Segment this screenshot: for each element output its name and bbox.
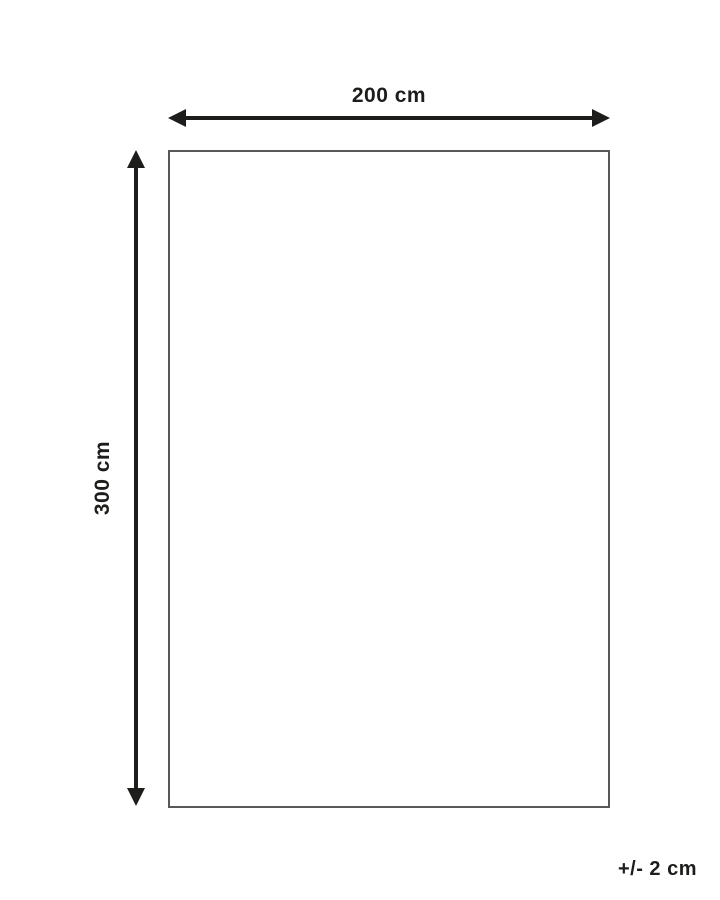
tolerance-label: +/- 2 cm [618, 858, 697, 881]
width-dimension-arrow-icon [168, 106, 610, 130]
height-dimension-arrow-icon [124, 150, 148, 806]
product-outline-rect [168, 150, 610, 808]
width-dimension-label: 200 cm [168, 84, 610, 108]
height-label-container: 300 cm [88, 150, 118, 806]
height-dimension-label: 300 cm [91, 441, 115, 515]
dimension-diagram: 200 cm 300 cm +/- 2 cm [0, 0, 720, 900]
